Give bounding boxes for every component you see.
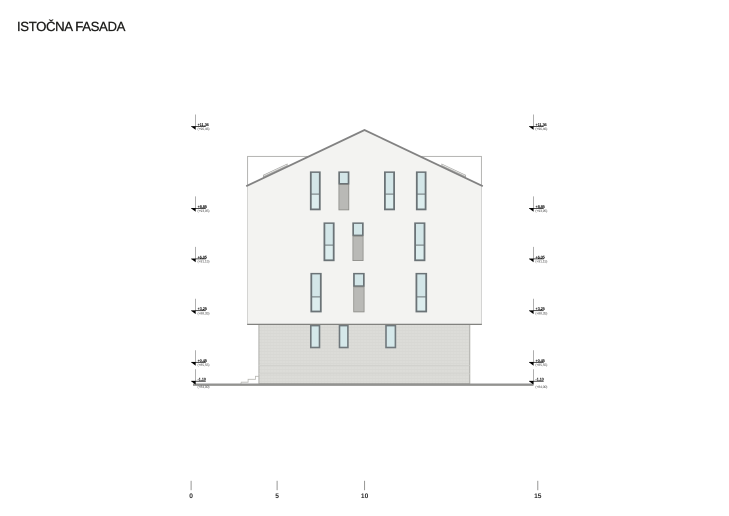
svg-text:(+93,95): (+93,95) <box>198 209 210 213</box>
svg-text:10: 10 <box>361 493 369 500</box>
svg-text:ISTOČNA FASADA: ISTOČNA FASADA <box>17 19 126 34</box>
svg-text:5: 5 <box>275 493 279 500</box>
svg-text:(+96,46): (+96,46) <box>535 127 547 131</box>
svg-text:-1,10: -1,10 <box>198 377 207 382</box>
svg-text:(+91,15): (+91,15) <box>198 260 210 264</box>
svg-text:0: 0 <box>189 493 193 500</box>
svg-text:(+93,95): (+93,95) <box>535 209 547 213</box>
svg-text:(+96,46): (+96,46) <box>198 127 210 131</box>
svg-text:(+84,00): (+84,00) <box>198 385 210 389</box>
svg-text:(+84,00): (+84,00) <box>535 385 547 389</box>
svg-text:15: 15 <box>534 493 542 500</box>
svg-text:(+85,55): (+85,55) <box>535 363 547 367</box>
svg-text:-1,10: -1,10 <box>535 377 544 382</box>
svg-text:(+91,15): (+91,15) <box>535 260 547 264</box>
svg-text:(+85,55): (+85,55) <box>198 363 210 367</box>
svg-text:(+88,35): (+88,35) <box>535 311 547 315</box>
svg-text:(+88,35): (+88,35) <box>198 311 210 315</box>
